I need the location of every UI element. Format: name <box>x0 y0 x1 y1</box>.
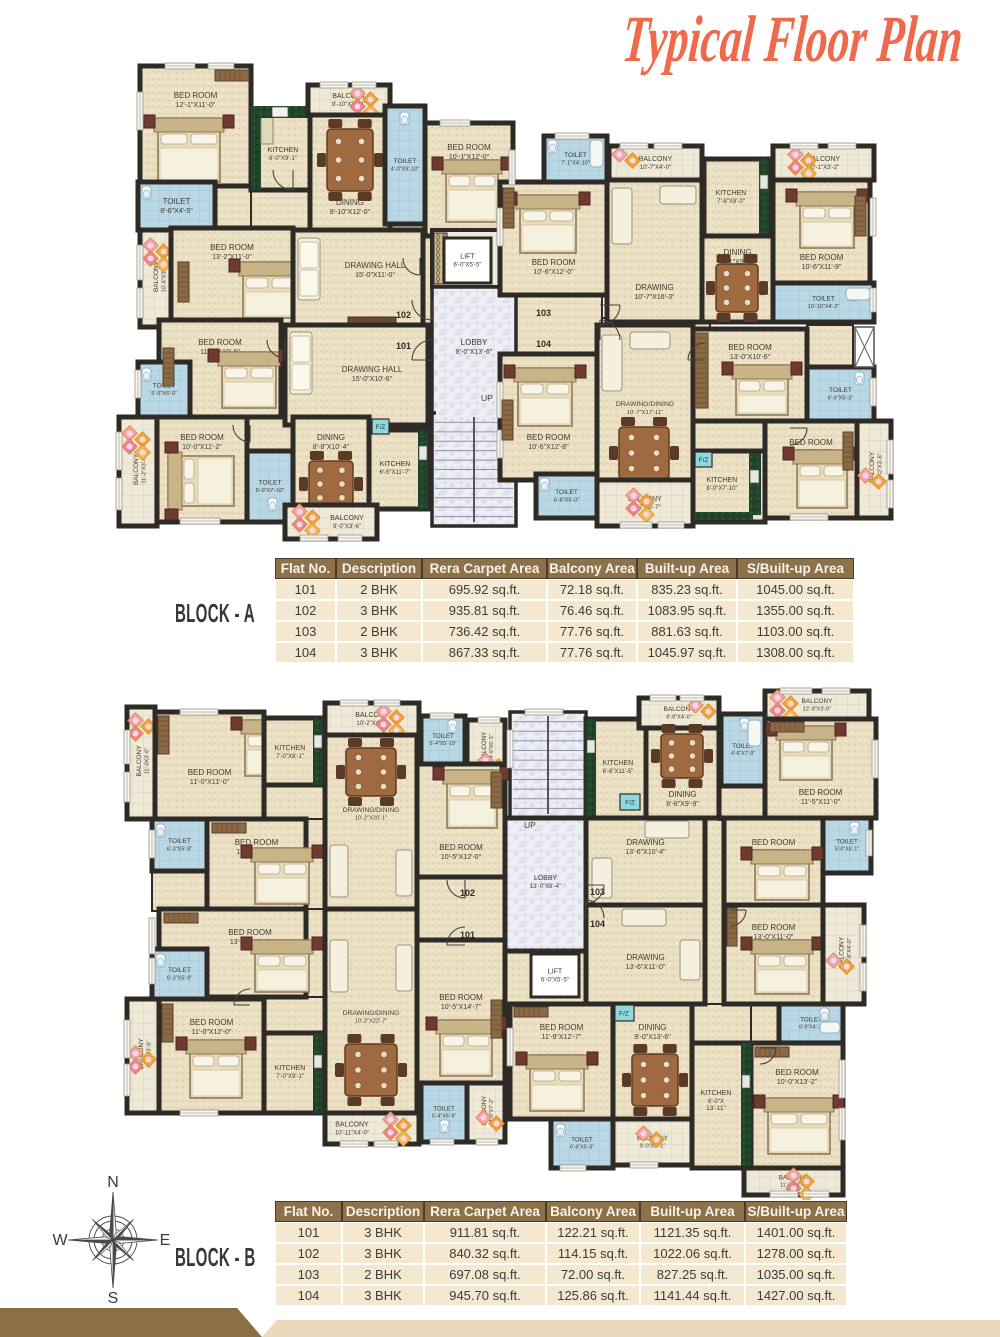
svg-text:N: N <box>107 1174 119 1191</box>
svg-text:F/Z: F/Z <box>376 424 386 431</box>
svg-text:8'-6"X4'-5": 8'-6"X4'-5" <box>160 208 193 215</box>
svg-text:10'-6"X11'-9": 10'-6"X11'-9" <box>802 264 842 271</box>
svg-text:10'-5"X12'-0": 10'-5"X12'-0" <box>441 854 482 861</box>
svg-text:BED ROOM: BED ROOM <box>775 1068 819 1077</box>
svg-text:10'-10"X4'-2": 10'-10"X4'-2" <box>808 304 840 310</box>
svg-text:9'-0"X3'-6": 9'-0"X3'-6" <box>333 524 361 530</box>
svg-text:DINING: DINING <box>669 790 697 799</box>
svg-text:7'-8"X8'-0": 7'-8"X8'-0" <box>717 199 745 205</box>
svg-text:F/Z: F/Z <box>625 800 635 807</box>
svg-text:4'-9"X6'-3": 4'-9"X6'-3" <box>489 734 495 758</box>
svg-text:15'-0"X10'-6": 15'-0"X10'-6" <box>352 376 393 383</box>
svg-text:8'-0"X7'-10": 8'-0"X7'-10" <box>706 486 737 492</box>
svg-text:BALCONY: BALCONY <box>136 745 143 777</box>
svg-text:12'-1"X11'-0": 12'-1"X11'-0" <box>176 102 216 109</box>
svg-text:KITCHEN: KITCHEN <box>603 760 634 767</box>
svg-text:8'-8"X10'-4": 8'-8"X10'-4" <box>313 444 350 451</box>
svg-text:LIFT: LIFT <box>460 254 475 261</box>
svg-text:TOILET: TOILET <box>800 1017 822 1024</box>
svg-text:TOILET: TOILET <box>168 838 191 845</box>
svg-text:BALCONY: BALCONY <box>335 1122 369 1129</box>
svg-text:7'-0"X9'-1": 7'-0"X9'-1" <box>276 1074 304 1080</box>
svg-text:DRAWING/DINING: DRAWING/DINING <box>616 401 674 408</box>
svg-text:UP: UP <box>524 820 536 830</box>
svg-text:TOILET: TOILET <box>829 387 852 394</box>
svg-text:11'-5"X11'-0": 11'-5"X11'-0" <box>801 799 841 806</box>
svg-text:103: 103 <box>536 308 551 318</box>
svg-text:10'-7"X4'-0": 10'-7"X4'-0" <box>640 165 671 171</box>
svg-text:BALCONY: BALCONY <box>639 156 673 163</box>
svg-text:BED ROOM: BED ROOM <box>180 433 224 442</box>
svg-text:101: 101 <box>396 341 411 351</box>
svg-text:10'-0"X11'-2": 10'-0"X11'-2" <box>182 444 222 451</box>
svg-text:6'-5"X11'-7": 6'-5"X11'-7" <box>380 470 411 476</box>
svg-text:BED ROOM: BED ROOM <box>198 338 242 347</box>
svg-text:6'-9"X5'-3": 6'-9"X5'-3" <box>828 396 854 402</box>
svg-text:8'-8"X9'-9": 8'-8"X9'-9" <box>666 801 699 808</box>
svg-text:102: 102 <box>396 310 411 320</box>
svg-text:KITCHEN: KITCHEN <box>707 477 738 484</box>
svg-text:6'-0"X5'-5": 6'-0"X5'-5" <box>541 978 569 984</box>
svg-text:TOILET: TOILET <box>555 489 578 496</box>
svg-text:TOILET: TOILET <box>163 197 191 206</box>
svg-text:11'-0"X11'-0": 11'-0"X11'-0" <box>190 779 230 786</box>
svg-text:104: 104 <box>590 919 605 929</box>
svg-text:F/Z: F/Z <box>699 457 709 464</box>
svg-text:13'-0"X8'-4": 13'-0"X8'-4" <box>530 884 561 890</box>
svg-text:DRAWING/DINING: DRAWING/DINING <box>343 1010 400 1017</box>
svg-text:6'-6"X5'-3": 6'-6"X5'-3" <box>570 1145 594 1151</box>
svg-text:6'-0"X5'-5": 6'-0"X5'-5" <box>454 263 482 269</box>
svg-text:BED ROOM: BED ROOM <box>228 928 272 937</box>
svg-text:8'-0"X13'-6": 8'-0"X13'-6" <box>456 349 493 356</box>
svg-text:BED ROOM: BED ROOM <box>789 438 833 447</box>
svg-text:9'-0"X13'-6": 9'-0"X13'-6" <box>634 1034 671 1041</box>
svg-text:LIFT: LIFT <box>548 969 563 976</box>
svg-text:10'-2"X20'-1": 10'-2"X20'-1" <box>355 816 387 822</box>
svg-text:DRAWING HALL: DRAWING HALL <box>345 261 406 270</box>
svg-text:DINING: DINING <box>317 433 345 442</box>
svg-text:5'-4"X5'-10": 5'-4"X5'-10" <box>429 741 456 747</box>
svg-text:104: 104 <box>536 339 551 349</box>
svg-text:BED ROOM: BED ROOM <box>799 788 843 797</box>
svg-text:F/Z: F/Z <box>619 1011 629 1018</box>
svg-text:15'-0"X11'-0": 15'-0"X11'-0" <box>355 272 395 279</box>
svg-text:TOILET: TOILET <box>259 480 282 487</box>
svg-text:LOBBY: LOBBY <box>534 875 558 882</box>
svg-text:13'-6"X10'-4": 13'-6"X10'-4" <box>625 849 666 856</box>
svg-text:BED ROOM: BED ROOM <box>527 433 571 442</box>
svg-text:BED ROOM: BED ROOM <box>752 923 796 932</box>
svg-text:TOILET: TOILET <box>432 733 454 740</box>
svg-text:LOBBY: LOBBY <box>461 338 488 347</box>
svg-text:4'-6"X7'-9": 4'-6"X7'-9" <box>731 751 755 757</box>
svg-text:11'-0"X12'-0": 11'-0"X12'-0" <box>192 1029 232 1036</box>
svg-text:7'-0"X8'-1": 7'-0"X8'-1" <box>276 754 304 760</box>
svg-text:10'-5"X14'-7": 10'-5"X14'-7" <box>441 1004 482 1011</box>
svg-text:TOILET: TOILET <box>836 839 858 846</box>
svg-text:TOILET: TOILET <box>433 1106 455 1113</box>
svg-text:UP: UP <box>481 393 493 403</box>
svg-text:7'-1"X4'-10": 7'-1"X4'-10" <box>561 161 590 167</box>
svg-text:BED ROOM: BED ROOM <box>174 91 218 100</box>
svg-text:DRAWING: DRAWING <box>635 283 673 292</box>
svg-text:BALCONY: BALCONY <box>330 515 364 522</box>
svg-text:S: S <box>108 1290 119 1307</box>
svg-text:KITCHEN: KITCHEN <box>716 190 747 197</box>
svg-text:12'-9"X3'-0": 12'-9"X3'-0" <box>803 707 832 713</box>
svg-text:10'-6"X12'-8": 10'-6"X12'-8" <box>528 444 569 451</box>
svg-text:DINING: DINING <box>639 1023 667 1032</box>
svg-text:BED ROOM: BED ROOM <box>752 838 796 847</box>
svg-text:102: 102 <box>460 888 475 898</box>
svg-text:DRAWING/DINING: DRAWING/DINING <box>343 807 400 814</box>
svg-text:9'-0"X5'-1": 9'-0"X5'-1" <box>640 1144 666 1150</box>
svg-text:E: E <box>160 1232 171 1249</box>
svg-text:101: 101 <box>460 930 475 940</box>
svg-text:5'-0"X6'-0": 5'-0"X6'-0" <box>151 391 177 397</box>
svg-text:KITCHEN: KITCHEN <box>380 461 411 468</box>
svg-text:BED ROOM: BED ROOM <box>210 243 254 252</box>
svg-text:BED ROOM: BED ROOM <box>447 143 491 152</box>
svg-text:10'-0"X13'-2": 10'-0"X13'-2" <box>777 1079 818 1086</box>
svg-text:13'-11": 13'-11" <box>706 1105 726 1112</box>
svg-text:5'-0"X6'-1": 5'-0"X6'-1" <box>835 847 859 853</box>
svg-text:KITCHEN: KITCHEN <box>275 1065 306 1072</box>
svg-text:6'-3"X5'-9": 6'-3"X5'-9" <box>167 847 193 853</box>
svg-text:6'-0"X9'-1": 6'-0"X9'-1" <box>269 156 297 162</box>
svg-text:W: W <box>52 1232 68 1249</box>
svg-text:BED ROOM: BED ROOM <box>188 768 232 777</box>
svg-text:BED ROOM: BED ROOM <box>439 993 483 1002</box>
svg-text:BED ROOM: BED ROOM <box>800 253 844 262</box>
svg-text:TOILET: TOILET <box>394 158 417 165</box>
svg-text:6'-3"X5'-9": 6'-3"X5'-9" <box>167 976 193 982</box>
svg-text:8'-10"X12'-0": 8'-10"X12'-0" <box>330 209 371 216</box>
svg-text:TOILET: TOILET <box>564 152 587 159</box>
svg-text:6'-8"X5'-0": 6'-8"X5'-0" <box>554 498 580 504</box>
svg-text:BED ROOM: BED ROOM <box>728 343 772 352</box>
svg-text:4'-0"X9'-10": 4'-0"X9'-10" <box>391 167 420 173</box>
svg-text:BALCONY: BALCONY <box>133 453 140 485</box>
svg-text:5'-0"X7'-10": 5'-0"X7'-10" <box>256 488 285 494</box>
svg-text:10'-6"X12'-0": 10'-6"X12'-0" <box>533 269 574 276</box>
svg-text:KITCHEN: KITCHEN <box>701 1090 732 1097</box>
svg-text:6'-6"X11'-5": 6'-6"X11'-5" <box>603 769 634 775</box>
svg-text:TOILET: TOILET <box>168 967 191 974</box>
svg-text:11'-9"X12'-7": 11'-9"X12'-7" <box>542 1034 582 1041</box>
svg-text:BED ROOM: BED ROOM <box>532 258 576 267</box>
svg-text:BED ROOM: BED ROOM <box>190 1018 234 1027</box>
svg-text:TOILET: TOILET <box>812 296 835 303</box>
svg-text:13'-6"X11'-0": 13'-6"X11'-0" <box>626 964 666 971</box>
svg-text:DRAWING: DRAWING <box>626 838 664 847</box>
svg-text:BED ROOM: BED ROOM <box>540 1023 584 1032</box>
svg-text:TOILET: TOILET <box>571 1137 593 1144</box>
svg-text:10'-7"X17'-11": 10'-7"X17'-11" <box>627 410 663 416</box>
svg-text:13'-0"X10'-6": 13'-0"X10'-6" <box>730 354 771 361</box>
svg-text:KITCHEN: KITCHEN <box>275 745 306 752</box>
svg-text:5'-4"X6'-9": 5'-4"X6'-9" <box>432 1114 456 1120</box>
svg-text:10'-11"X4'-0": 10'-11"X4'-0" <box>335 1131 369 1137</box>
svg-text:10'-2"X22'-7": 10'-2"X22'-7" <box>355 1019 387 1025</box>
svg-text:DRAWING HALL: DRAWING HALL <box>342 365 403 374</box>
svg-text:BED ROOM: BED ROOM <box>439 843 483 852</box>
svg-text:8'-8"X4'-0": 8'-8"X4'-0" <box>666 715 692 721</box>
svg-text:DRAWING: DRAWING <box>626 953 664 962</box>
svg-text:KITCHEN: KITCHEN <box>268 147 299 154</box>
svg-text:11'-0X3'-6": 11'-0X3'-6" <box>145 748 151 774</box>
svg-text:BALCONY: BALCONY <box>801 698 833 705</box>
svg-text:10'-7"X16'-3": 10'-7"X16'-3" <box>634 294 675 301</box>
